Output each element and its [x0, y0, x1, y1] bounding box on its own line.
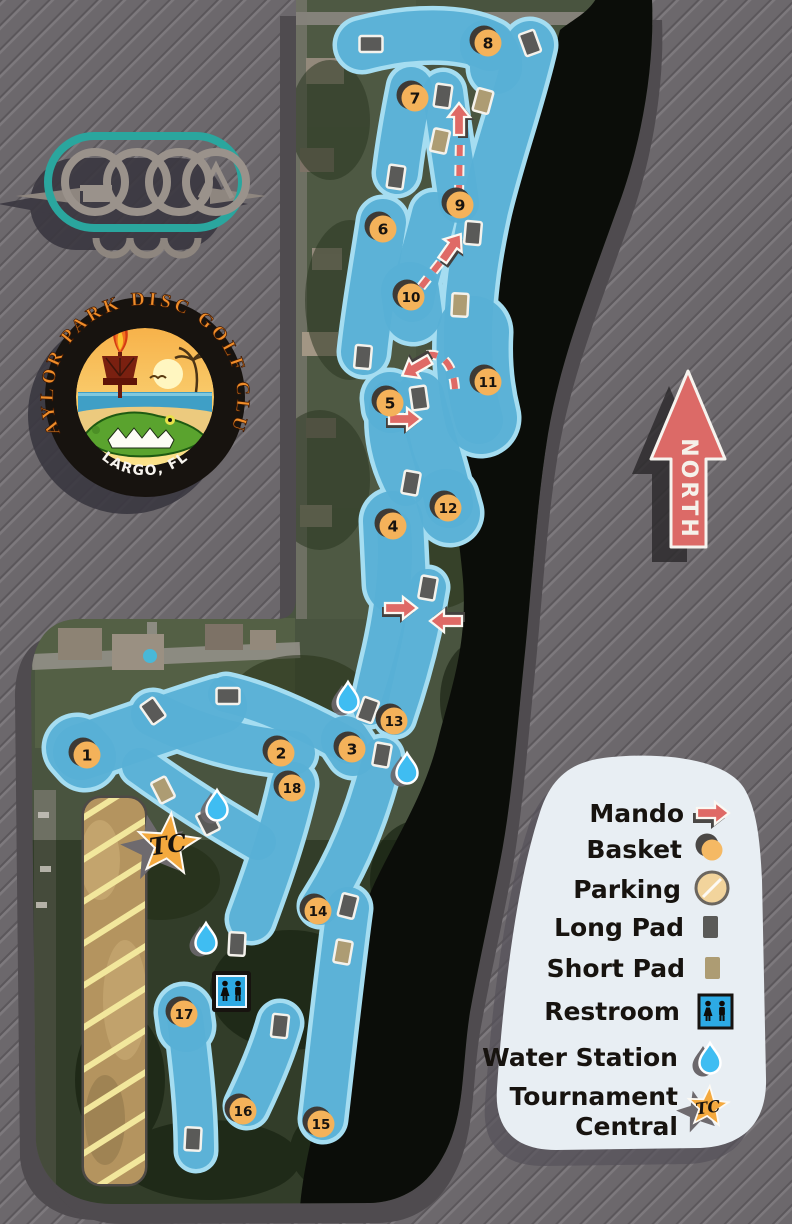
restroom-legend-icon: [699, 995, 732, 1028]
svg-text:4: 4: [388, 518, 399, 536]
short-pad: [451, 293, 468, 317]
long-pad: [433, 83, 452, 108]
legend-label-restroom: Restroom: [544, 997, 680, 1026]
short-pad: [430, 128, 450, 154]
long-pad: [418, 575, 438, 600]
svg-text:2: 2: [276, 745, 287, 763]
course-map-page: 123456789101112131415161718 TC NORTH: [0, 0, 792, 1224]
restroom-icon: [212, 971, 251, 1012]
svg-text:6: 6: [378, 221, 389, 239]
svg-text:7: 7: [410, 90, 421, 108]
long-pad: [360, 36, 383, 52]
long-pad: [271, 1014, 289, 1039]
long-pad: [184, 1127, 201, 1151]
long-pad: [228, 932, 245, 956]
long-pad: [464, 221, 482, 245]
long-pad: [217, 688, 240, 704]
svg-text:12: 12: [439, 501, 458, 517]
legend-label-short-pad: Short Pad: [547, 954, 685, 983]
svg-text:15: 15: [312, 1117, 331, 1133]
long-pad: [372, 742, 392, 767]
north-label: NORTH: [676, 438, 701, 540]
legend-label-water-station: Water Station: [482, 1043, 678, 1072]
svg-text:16: 16: [234, 1104, 253, 1120]
legend-label-central: Central: [575, 1112, 678, 1141]
parking-icon: [696, 872, 728, 904]
svg-text:10: 10: [402, 290, 421, 306]
svg-text:9: 9: [455, 197, 466, 215]
long-pad: [401, 470, 421, 495]
legend-label-long-pad: Long Pad: [554, 913, 684, 942]
svg-text:3: 3: [347, 741, 358, 759]
svg-text:1: 1: [82, 747, 93, 765]
course-map-svg: 123456789101112131415161718 TC NORTH: [0, 0, 792, 1224]
long-pad: [354, 345, 372, 369]
long-pad: [409, 385, 428, 410]
long-pad-icon: [703, 916, 718, 938]
tc-star-icon-label: TC: [694, 1096, 721, 1118]
short-pad-icon: [705, 957, 720, 979]
tc-star-label: TC: [148, 828, 189, 862]
long-pad: [386, 164, 405, 189]
svg-text:17: 17: [175, 1007, 194, 1023]
svg-text:8: 8: [483, 35, 494, 53]
svg-text:18: 18: [283, 781, 302, 797]
svg-text:11: 11: [479, 375, 498, 391]
svg-text:5: 5: [385, 395, 396, 413]
legend-label-tournament: Tournament: [510, 1082, 679, 1111]
legend-label-parking: Parking: [573, 875, 681, 904]
legend-label-mando: Mando: [589, 799, 684, 828]
svg-text:13: 13: [385, 714, 404, 730]
legend-label-basket: Basket: [586, 835, 682, 864]
svg-text:14: 14: [309, 904, 328, 920]
short-pad: [333, 939, 353, 964]
